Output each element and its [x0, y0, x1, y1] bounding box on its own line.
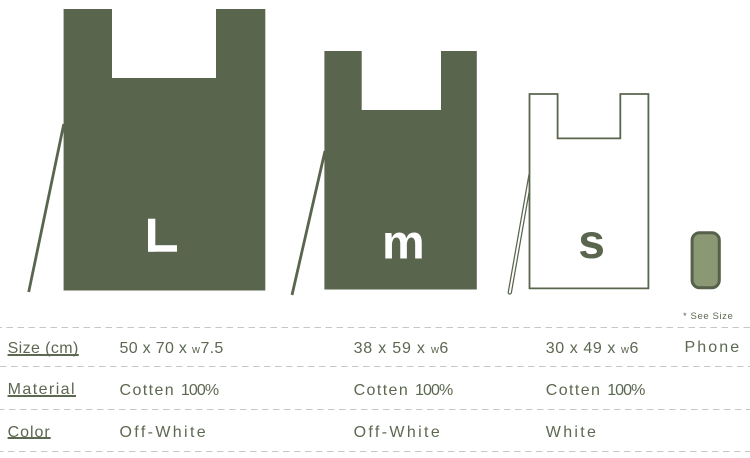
svg-text:m: m: [382, 216, 425, 269]
svg-text:s: s: [578, 216, 605, 269]
